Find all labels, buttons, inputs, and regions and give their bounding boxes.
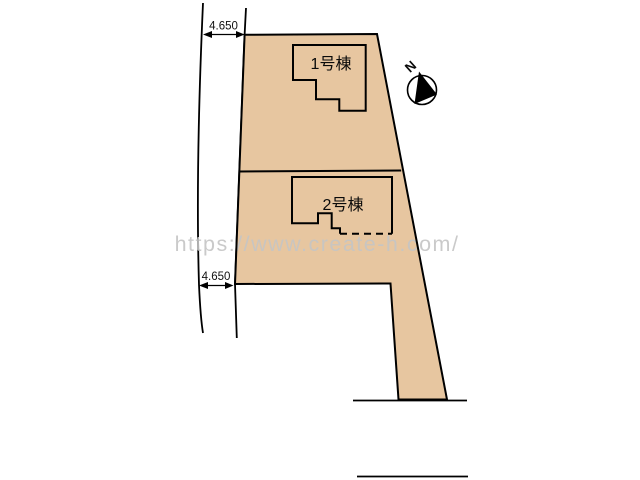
dimension-bottom: 4.650 [199,271,234,289]
site-plan-drawing: https://www.create-h.com/ 1号棟 2号棟 4.650 … [0,0,640,480]
dimension-bottom-value: 4.650 [202,271,231,283]
dimension-top: 4.650 [203,21,245,39]
lot-division-line [239,171,401,172]
dimension-bottom-arrow-right-icon [225,282,234,289]
building-1-label: 1号棟 [311,55,352,73]
compass-north-label: N [402,58,419,76]
road-edge-left [198,3,203,333]
dimension-bottom-arrow-left-icon [199,282,208,289]
site-plan-canvas: https://www.create-h.com/ 1号棟 2号棟 4.650 … [0,0,640,480]
building-2-label: 2号棟 [323,196,364,214]
dimension-top-value: 4.650 [209,21,238,33]
north-compass: N [402,58,437,105]
